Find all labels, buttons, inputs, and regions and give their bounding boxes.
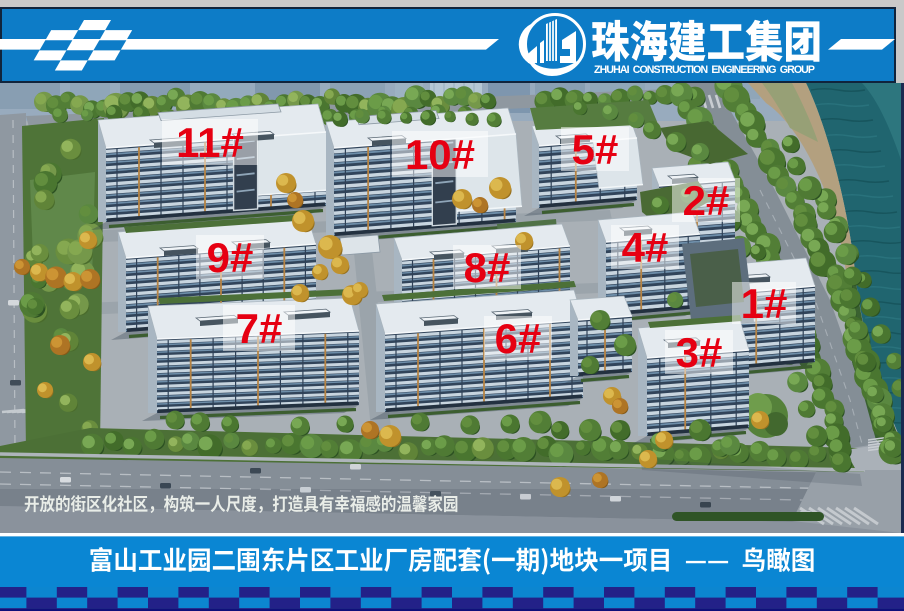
- svg-text:1#: 1#: [741, 280, 788, 327]
- svg-text:5#: 5#: [572, 126, 619, 173]
- svg-text:10#: 10#: [405, 131, 475, 178]
- svg-text:2#: 2#: [683, 177, 730, 224]
- svg-text:11#: 11#: [176, 119, 244, 166]
- svg-text:3#: 3#: [676, 329, 723, 376]
- svg-text:9#: 9#: [207, 234, 254, 281]
- svg-text:8#: 8#: [464, 244, 511, 291]
- svg-text:4#: 4#: [622, 224, 669, 271]
- svg-text:ZHUHAI CONSTRUCTION ENGINEER: ZHUHAI CONSTRUCTION ENGINEERING GROUP: [594, 64, 815, 76]
- svg-text:6#: 6#: [495, 315, 542, 362]
- svg-text:7#: 7#: [236, 305, 283, 352]
